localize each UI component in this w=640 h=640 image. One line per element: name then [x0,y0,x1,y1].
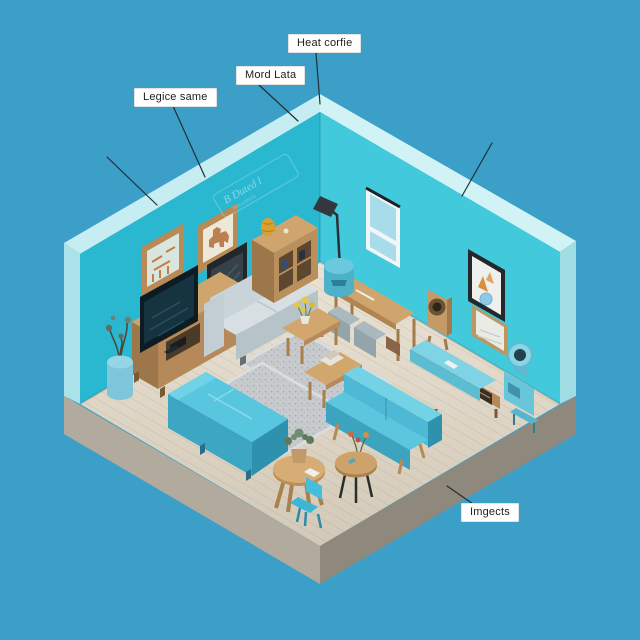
right-wall-outer-face [560,241,576,404]
leader-line-mord-lata [259,85,298,121]
label-mord-lata: Mord Lata [236,66,305,85]
left-wall-outer-face [64,243,80,404]
room-scene-canvas: B Duted l btecsdttece [0,0,640,640]
label-legice-same: Legice same [134,88,217,107]
leader-line-left-extra [107,157,157,205]
isometric-room-illustration: B Duted l btecsdttece [0,0,640,640]
blue-stool [324,258,354,297]
leader-line-legice-same [173,106,205,177]
label-imgects: Imgects [461,503,519,522]
label-heat-corfie: Heat corfie [288,34,361,53]
